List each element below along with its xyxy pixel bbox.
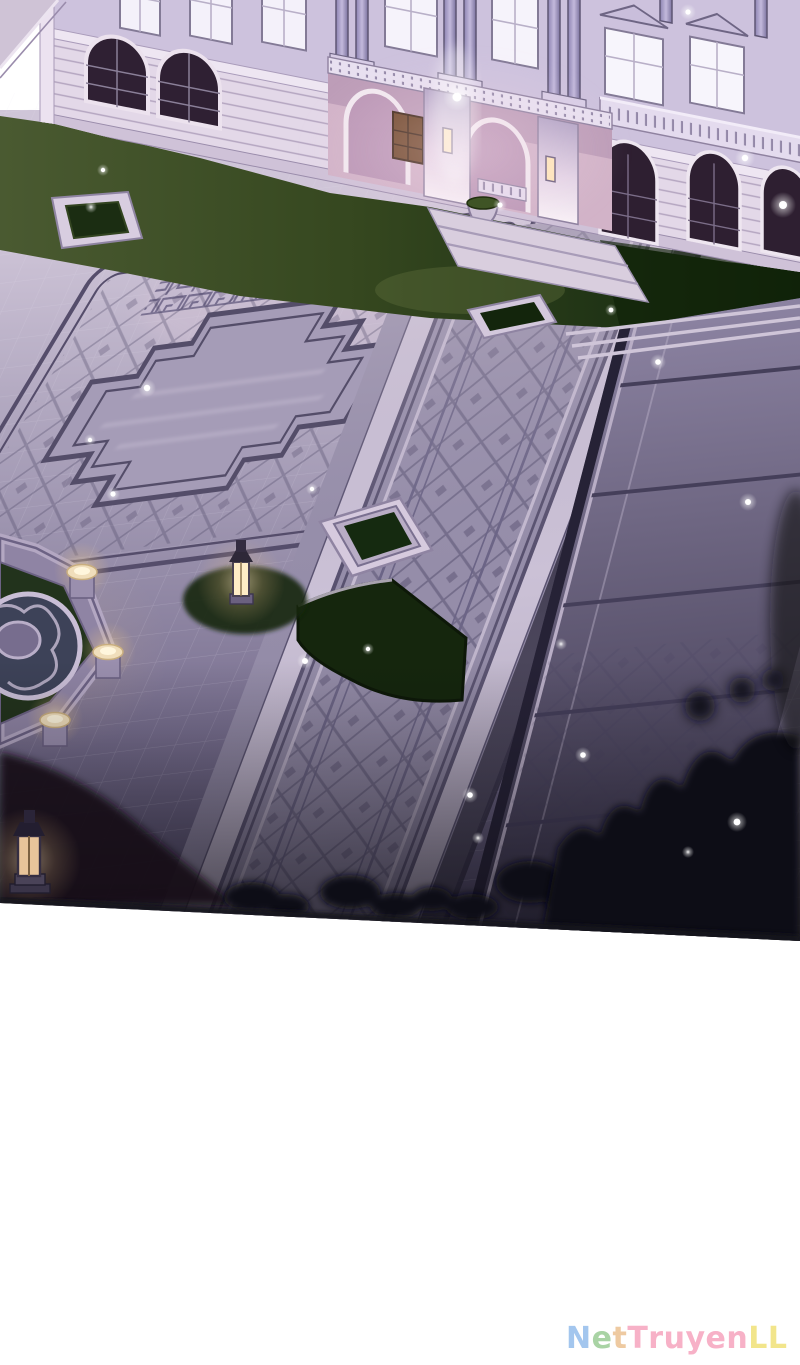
- watermark-letter: e: [592, 1321, 613, 1356]
- watermark-letter: N: [566, 1321, 592, 1356]
- comic-panel-image: [0, 0, 800, 1365]
- watermark-letter: t: [612, 1321, 627, 1356]
- site-watermark: NetTruyenLL: [566, 1321, 787, 1356]
- watermark-letter: n: [726, 1321, 748, 1356]
- watermark-letter: r: [648, 1321, 663, 1356]
- watermark-letter: L: [748, 1321, 768, 1356]
- watermark-letter: T: [627, 1321, 648, 1356]
- watermark-letter: L: [768, 1321, 788, 1356]
- watermark-letter: y: [685, 1321, 705, 1356]
- lamp-bollard: [54, 542, 110, 598]
- planter-box: [52, 192, 142, 248]
- watermark-letter: e: [706, 1321, 727, 1356]
- watermark-letter: u: [664, 1321, 686, 1356]
- fountain-pedestal: [0, 622, 40, 658]
